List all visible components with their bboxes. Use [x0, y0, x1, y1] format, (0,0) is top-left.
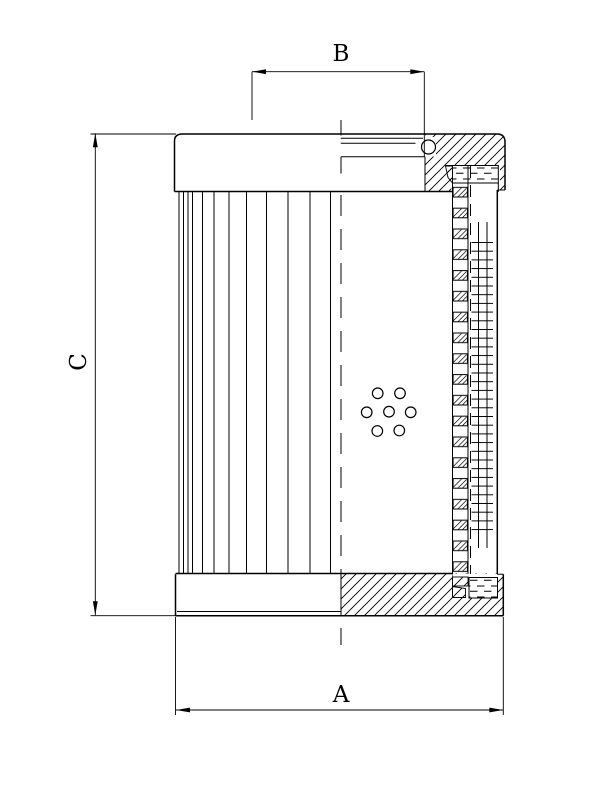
dim-a-arrow-left — [176, 708, 190, 713]
dim-c-arrow-top — [93, 133, 98, 147]
technical-drawing-canvas: B C A — [0, 0, 612, 792]
dim-b-label: B — [333, 41, 350, 67]
drawing-sheet: B C A — [0, 0, 612, 792]
perforated-core-tube — [453, 183, 469, 598]
support-mesh-rungs — [472, 238, 494, 536]
bottom-end-cap — [176, 574, 504, 616]
hole — [384, 406, 395, 417]
hole — [372, 426, 383, 437]
core-tube-end-wedge — [453, 587, 466, 598]
dim-a-label: A — [332, 682, 350, 708]
dim-c-label: C — [66, 353, 92, 371]
top-cap-hatch-fill — [425, 134, 505, 165]
dim-b-arrow-left — [252, 69, 266, 74]
hole — [361, 407, 372, 418]
top-potting-band — [453, 166, 499, 183]
dimension-c: C — [66, 133, 176, 615]
dim-b-arrow-right — [410, 69, 424, 74]
bottom-potting-band — [469, 578, 498, 599]
dim-a-arrow-right — [489, 708, 503, 713]
hole — [394, 425, 405, 436]
collar-slot-lines — [341, 138, 425, 191]
hole — [405, 407, 416, 418]
dimension-a: A — [176, 617, 504, 715]
dimension-b: B — [252, 41, 424, 157]
drain-holes — [361, 388, 416, 436]
dim-c-arrow-bottom — [93, 601, 98, 615]
core-tube-end-square — [453, 577, 469, 586]
hole — [372, 388, 383, 399]
dim-c-extension-lines — [91, 134, 177, 616]
core-and-mesh — [453, 165, 498, 598]
hole — [395, 388, 406, 399]
pleated-media — [179, 192, 331, 574]
